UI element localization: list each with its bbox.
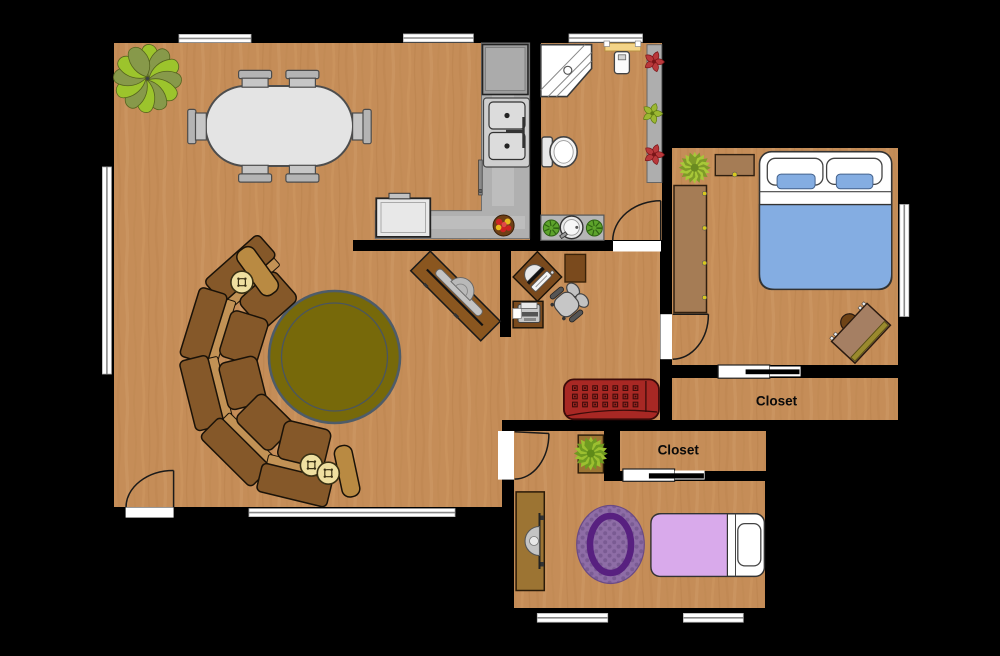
svg-text:Closet: Closet <box>658 443 700 458</box>
svg-text:Closet: Closet <box>756 394 798 409</box>
